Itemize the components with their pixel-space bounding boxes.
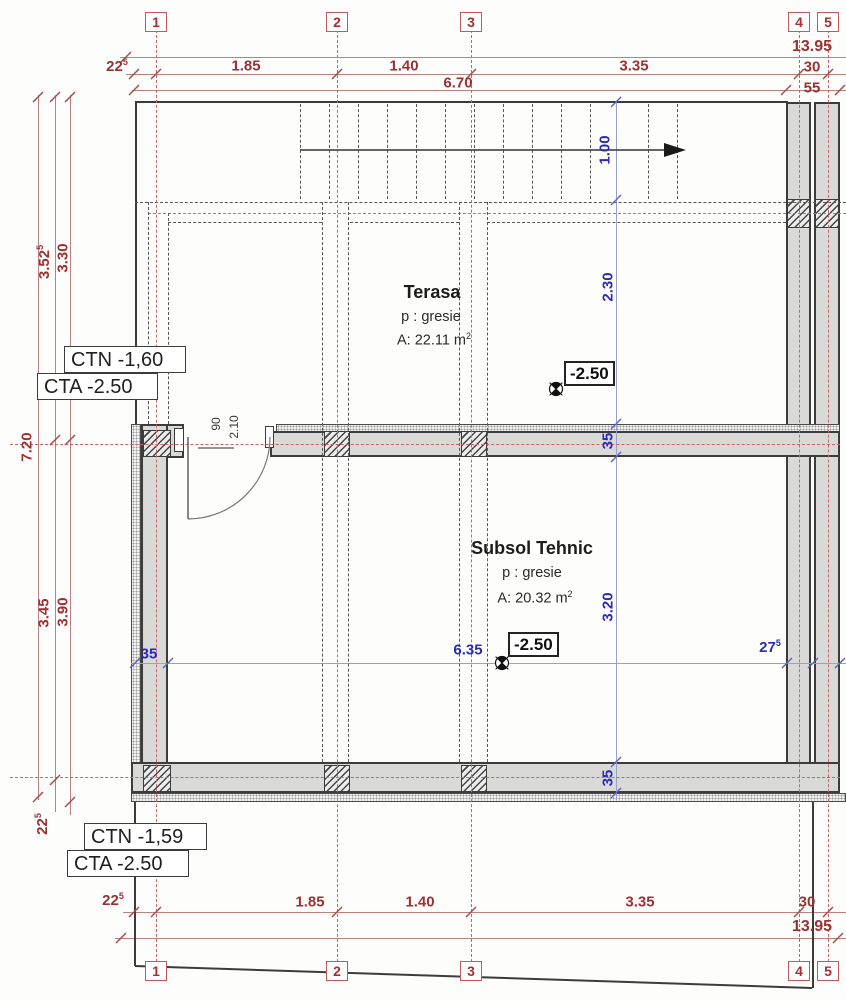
grid-bubble-4-bottom: 4 (788, 961, 810, 981)
dim-blue-275: 275 (759, 639, 781, 655)
red-dim-ticks (33, 52, 845, 943)
room-area-subsol: A: 20.32 m2 (497, 590, 572, 606)
dim-bottom-22: 225 (102, 892, 124, 908)
dim-top-140: 1.40 (389, 59, 418, 74)
dim-blue-635: 6.35 (453, 643, 482, 658)
grid-bubble-5-bottom: 5 (817, 961, 839, 981)
dim-top-22: 225 (106, 58, 128, 74)
dim-blue-230: 2.30 (601, 272, 616, 301)
grid-bubble-3-top: 3 (460, 12, 482, 32)
room-finish-terasa: p : gresie (401, 310, 461, 325)
dim-blue-35-wall: 35 (601, 433, 616, 450)
dim-blue-35-left: 35 (141, 647, 158, 662)
dim-blue-320: 3.20 (601, 592, 616, 621)
dim-top-670: 6.70 (443, 76, 472, 91)
door-width-label: 90 (210, 417, 222, 430)
door-height-label: 2.10 (228, 415, 240, 438)
note-cta-lower: CTA -2.50 (67, 850, 189, 877)
dim-top-185: 1.85 (231, 59, 260, 74)
dim-bottom-30: 30 (799, 895, 816, 910)
dim-bottom-overall: 13.95 (792, 919, 832, 935)
dim-blue-100: 1.00 (598, 135, 613, 164)
room-name-subsol: Subsol Tehnic (471, 539, 593, 557)
level-value-terasa: -2.50 (564, 361, 615, 386)
dim-left-330: 3.30 (56, 243, 71, 272)
level-value-subsol: -2.50 (508, 632, 559, 657)
grid-bubble-4-top: 4 (788, 12, 810, 32)
floor-plan-drawing: 1 2 3 4 5 1 2 3 4 5 13.95 225 1.85 1.40 … (0, 0, 846, 1000)
dim-left-390: 3.90 (56, 597, 71, 626)
grid-bubble-2-bottom: 2 (326, 961, 348, 981)
room-finish-subsol: p : gresie (502, 566, 562, 581)
dim-left-225: 225 (34, 813, 50, 835)
note-ctn-lower: CTN -1,59 (84, 823, 207, 850)
stair-direction-arrow (664, 143, 686, 157)
blue-dim-ticks (130, 97, 845, 798)
dim-top-55: 55 (804, 81, 821, 96)
room-area-terasa: A: 22.11 m2 (397, 332, 471, 348)
dim-top-335: 3.35 (619, 59, 648, 74)
room-name-terasa: Terasa (404, 283, 461, 301)
dim-left-720: 7.20 (20, 432, 35, 461)
note-cta-upper: CTA -2.50 (37, 373, 158, 400)
dim-bottom-185: 1.85 (295, 895, 324, 910)
dim-top-overall: 13.95 (792, 39, 832, 55)
dim-left-345: 3.45 (37, 598, 52, 627)
dim-left-352: 3.525 (36, 245, 52, 279)
dim-bottom-335: 3.35 (625, 895, 654, 910)
grid-bubble-3-bottom: 3 (460, 961, 482, 981)
note-ctn-upper: CTN -1,60 (64, 346, 186, 373)
door-swing-arc (188, 437, 270, 519)
dim-top-30: 30 (804, 60, 821, 75)
grid-bubble-1-top: 1 (145, 12, 167, 32)
grid-bubble-2-top: 2 (326, 12, 348, 32)
dim-bottom-140: 1.40 (405, 895, 434, 910)
grid-bubble-1-bottom: 1 (145, 961, 167, 981)
dim-blue-35-bottom: 35 (601, 770, 616, 787)
grid-bubble-5-top: 5 (817, 12, 839, 32)
